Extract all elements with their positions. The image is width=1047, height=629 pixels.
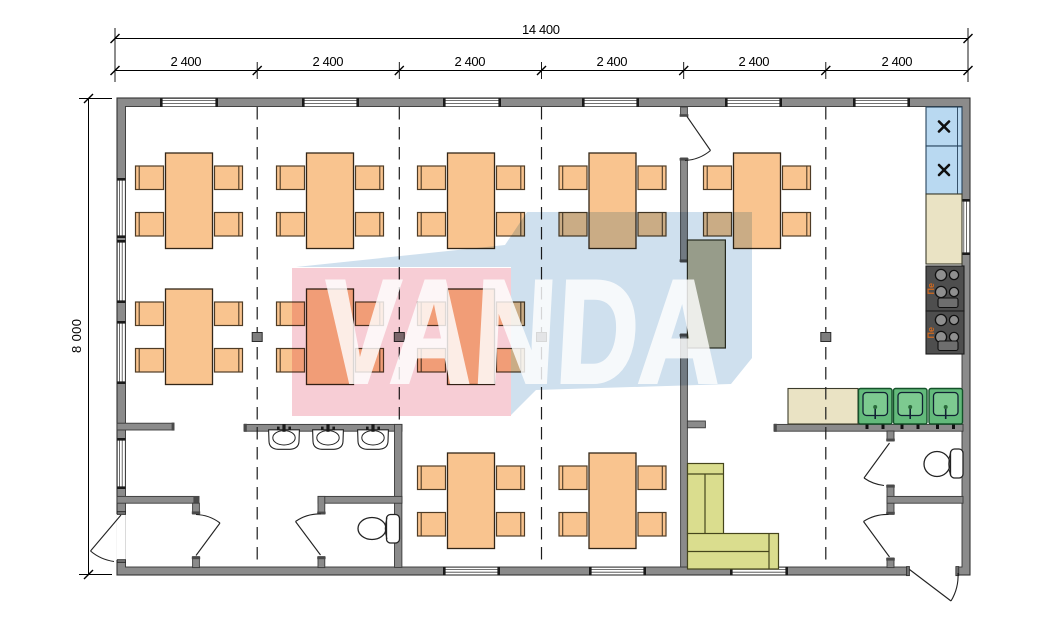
- svg-text:8 000: 8 000: [69, 319, 84, 353]
- svg-text:2 400: 2 400: [171, 54, 202, 69]
- svg-text:Пе: Пе: [926, 327, 936, 338]
- svg-text:2 400: 2 400: [455, 54, 486, 69]
- svg-text:2 400: 2 400: [882, 54, 913, 69]
- svg-text:2 400: 2 400: [313, 54, 344, 69]
- svg-text:2 400: 2 400: [597, 54, 628, 69]
- svg-text:VANDA: VANDA: [319, 250, 727, 413]
- svg-text:2 400: 2 400: [739, 54, 770, 69]
- svg-text:Пе: Пе: [926, 283, 936, 294]
- svg-text:14 400: 14 400: [522, 22, 560, 37]
